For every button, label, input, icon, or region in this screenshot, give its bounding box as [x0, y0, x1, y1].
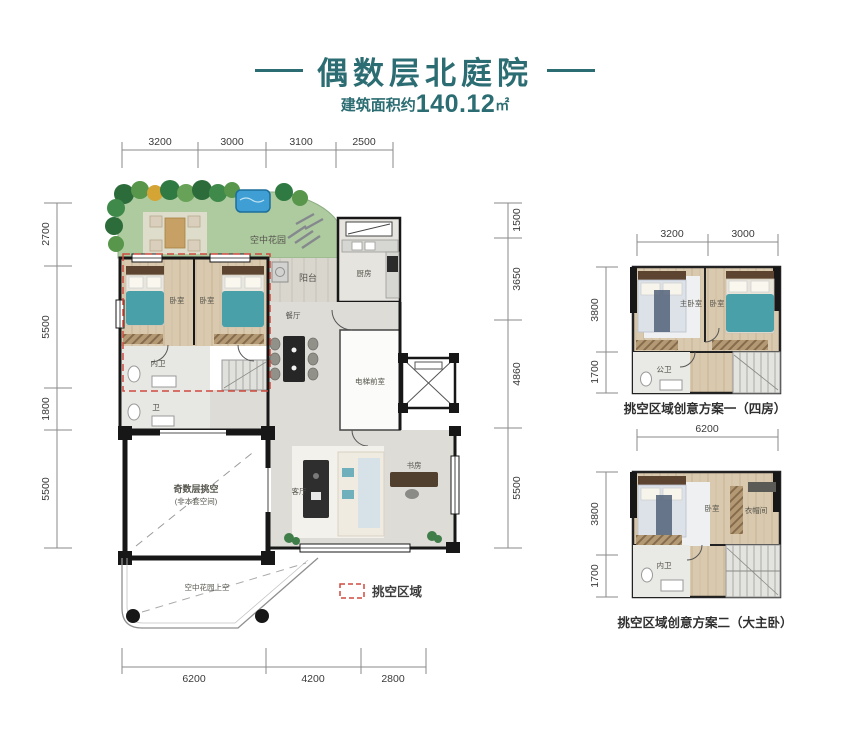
bathroom: 卫 [120, 390, 210, 430]
sink-icon [152, 416, 174, 426]
void-legend: 挑空区域 [340, 584, 423, 599]
dim-label: 3200 [148, 136, 172, 148]
study-label: 书房 [407, 460, 422, 470]
void-legend-label: 挑空区域 [372, 584, 423, 599]
dining-label: 餐厅 [286, 311, 301, 320]
sky-garden-label: 空中花园 [250, 234, 286, 245]
plan-two-closet-label: 衣帽间 [745, 505, 768, 515]
sky-garden: 空中花园 [105, 180, 338, 258]
dim-label: 1700 [589, 360, 601, 384]
stairs-main [222, 360, 268, 390]
chair-icon [405, 489, 419, 499]
door-arc [238, 345, 254, 361]
dim-label: 3000 [220, 136, 244, 148]
dim-label: 6200 [695, 423, 719, 435]
kitchen-label: 厨房 [357, 268, 372, 278]
plan-one-stairs [733, 352, 780, 393]
wardrobe-icon [214, 334, 264, 344]
floorplan-page: 偶数层北庭院 建筑面积约140.12㎡ [0, 0, 850, 737]
living-label: 客厅 [292, 486, 307, 496]
shelf-icon [748, 482, 776, 492]
garden-seating-icon [143, 212, 207, 254]
wardrobe-icon [712, 340, 768, 350]
main-dims-top: 3200 3000 3100 2500 [122, 136, 393, 168]
floorplan-canvas: 空中花园 阳台 [0, 0, 850, 737]
plan-two-bedroom-label: 卧室 [705, 503, 720, 513]
elevator-lobby-label: 电梯前室 [355, 376, 385, 386]
void-room-label-2: (非本套空间) [175, 496, 218, 506]
main-dims-left: 2700 5500 1800 5500 [40, 203, 72, 548]
dim-label: 3800 [589, 502, 601, 526]
inner-bath-label: 内卫 [151, 358, 166, 368]
washer-icon [272, 262, 288, 282]
column-icon [255, 609, 269, 623]
plan-two-caption: 挑空区域创意方案二（大主卧） [617, 615, 792, 630]
balcony-label: 阳台 [299, 272, 317, 283]
island-icon [303, 460, 329, 518]
pool-icon [236, 190, 270, 212]
balcony: 阳台 [268, 258, 338, 302]
garden-above-label: 空中花园上空 [185, 582, 230, 592]
dim-label: 2500 [352, 136, 376, 148]
wardrobe-icon [636, 340, 678, 350]
toilet-icon [128, 366, 140, 382]
plan-one: 3200 3000 3800 1700 [589, 228, 786, 416]
dim-label: 3200 [660, 228, 684, 240]
dim-label: 1700 [589, 564, 601, 588]
elevator-lobby: 电梯前室 [332, 310, 400, 446]
bed-1-icon [126, 266, 164, 325]
plan-one-bath: 公卫 [633, 352, 690, 393]
dim-label: 2700 [40, 222, 52, 246]
toilet-icon [128, 404, 140, 420]
plan-two: 6200 3800 1700 卧室 [589, 423, 793, 630]
dim-label: 1500 [511, 208, 523, 232]
dim-label: 3000 [731, 228, 755, 240]
dim-label: 4860 [511, 362, 523, 386]
wardrobe-icon [123, 334, 163, 344]
desk-icon [390, 472, 438, 487]
sink-icon [152, 376, 176, 387]
plan-one-bath-label: 公卫 [657, 365, 672, 374]
plan-two-bath: 内卫 [633, 545, 690, 597]
sink-icon [661, 580, 683, 591]
column-icon [126, 609, 140, 623]
void-legend-swatch [340, 584, 364, 598]
dim-label: 2800 [381, 673, 405, 685]
plan-one-dims-left: 3800 1700 [589, 267, 618, 393]
inner-bathroom: 内卫 [120, 346, 210, 390]
wardrobe-icon [636, 535, 682, 545]
dim-label: 3650 [511, 267, 523, 291]
dim-label: 5500 [40, 477, 52, 501]
plan-two-dims-top: 6200 [637, 423, 778, 451]
main-floor-plan: 空中花园 阳台 [40, 136, 523, 685]
dim-label: 1800 [40, 397, 52, 421]
plan-one-dims-top: 3200 3000 [637, 228, 778, 256]
bath-label: 卫 [152, 403, 160, 412]
void-room-label-1: 奇数层挑空 [173, 483, 218, 494]
plan-one-bed-icon [726, 271, 774, 333]
bedroom-2-label: 卧室 [200, 295, 215, 305]
toilet-icon [641, 372, 652, 386]
sink-icon [660, 380, 682, 390]
dining-table-icon [283, 336, 305, 382]
terrace-outline: 空中花园上空 [122, 558, 318, 628]
sofa-icon [338, 452, 384, 536]
dim-label: 6200 [182, 673, 206, 685]
dim-label: 3100 [289, 136, 313, 148]
dim-label: 3800 [589, 298, 601, 322]
plan-one-master-label: 主卧室 [680, 298, 703, 308]
plan-two-bath-label: 内卫 [657, 560, 672, 570]
dim-label: 5500 [40, 315, 52, 339]
plan-one-caption: 挑空区域创意方案一（四房） [624, 401, 787, 416]
plan-one-bedroom-label: 卧室 [710, 298, 725, 308]
bedroom-wing: 卧室 卧室 [120, 258, 268, 346]
plan-two-stairs [726, 545, 780, 597]
bedroom-1-label: 卧室 [170, 295, 185, 305]
kitchen: 厨房 [338, 218, 400, 302]
dim-label: 4200 [301, 673, 325, 685]
main-dims-bottom: 6200 4200 2800 [122, 648, 426, 685]
void-room: 奇数层挑空 (非本套空间) [118, 426, 275, 565]
elevator-shaft [398, 353, 459, 413]
dim-label: 5500 [511, 476, 523, 500]
plan-two-dims-left: 3800 1700 [589, 472, 618, 597]
main-dims-right: 1500 3650 4860 5500 [494, 203, 523, 548]
stove-icon [387, 256, 398, 272]
toilet-icon [642, 568, 653, 582]
bed-2-icon [222, 266, 264, 327]
wardrobe-icon [730, 486, 743, 534]
